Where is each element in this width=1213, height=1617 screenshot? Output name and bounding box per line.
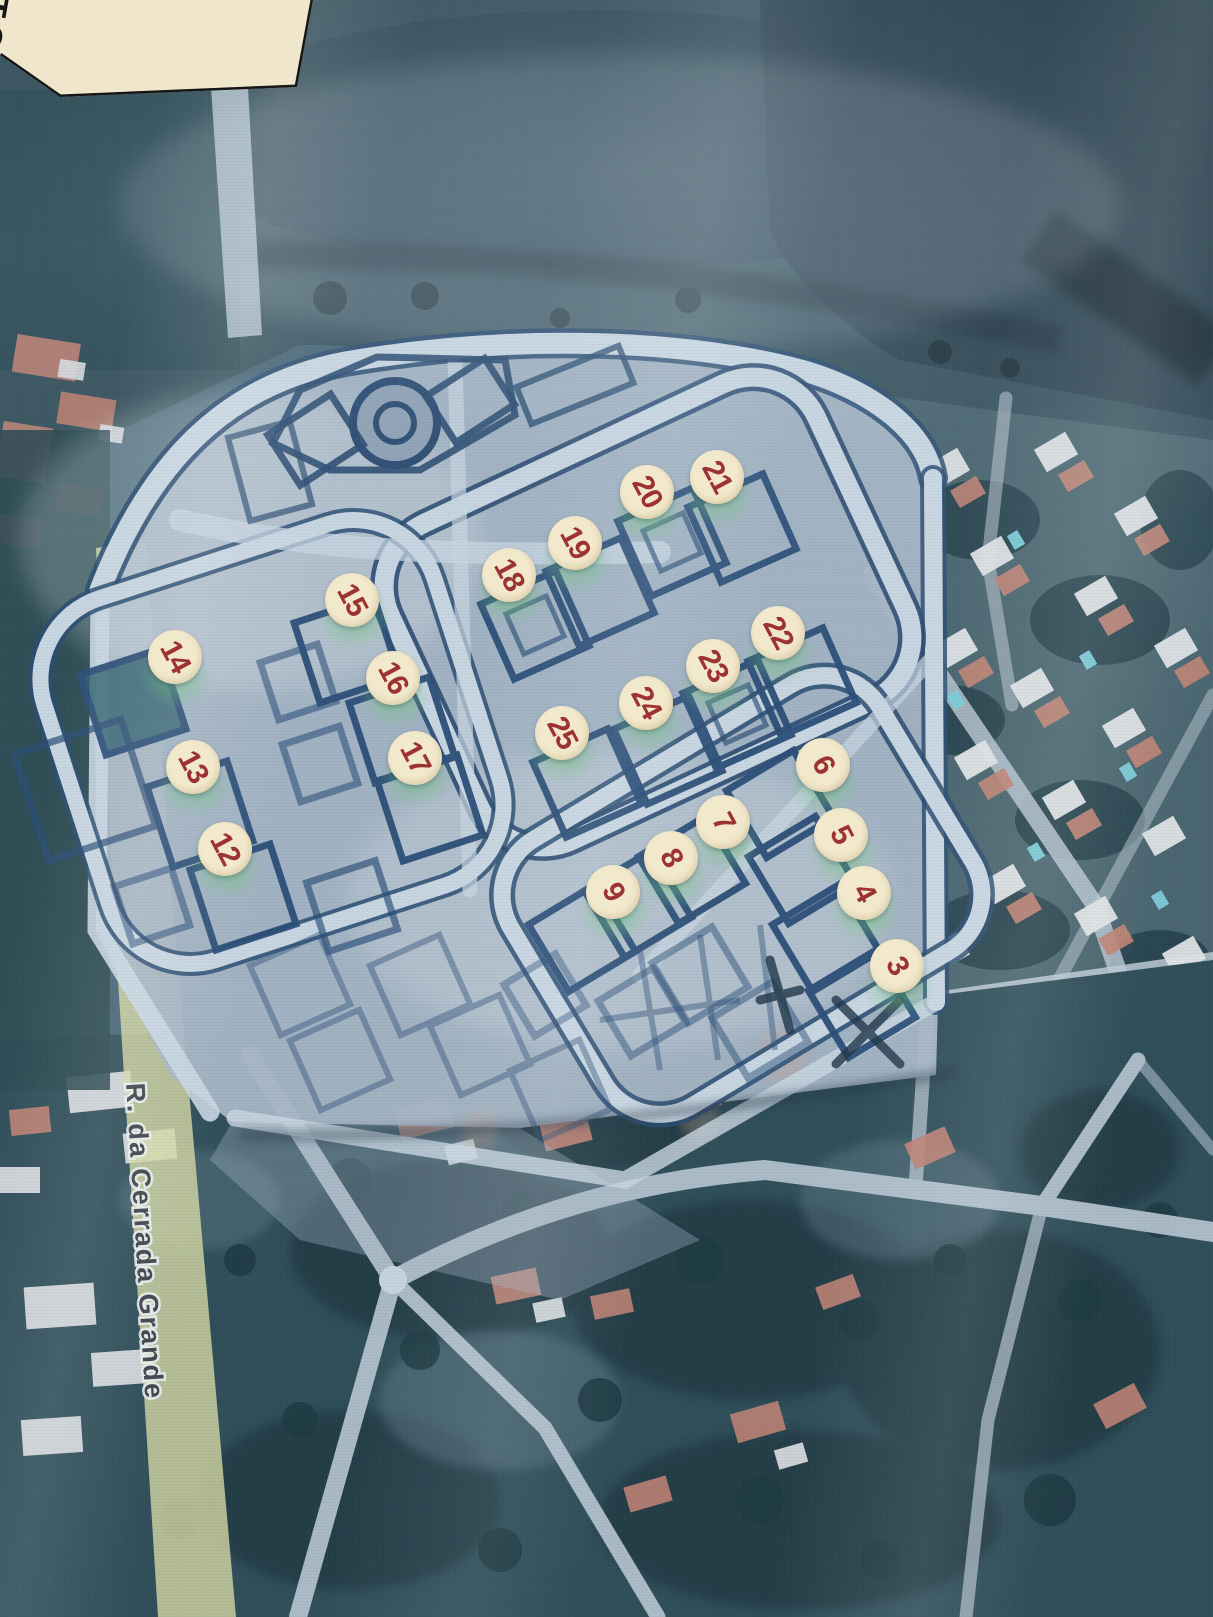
- lot-marker-number: 23: [692, 645, 733, 687]
- lot-marker-16: 16: [366, 651, 420, 705]
- lot-marker-20: 20: [620, 465, 674, 519]
- lot-marker-number: 13: [172, 746, 213, 788]
- lot-marker-number: 22: [757, 612, 798, 654]
- lot-marker-9: 9: [586, 865, 640, 919]
- lot-marker-number: 15: [331, 579, 372, 621]
- lot-marker-number: 20: [626, 471, 667, 513]
- lot-marker-number: 3: [880, 952, 914, 980]
- lot-marker-number: 6: [806, 751, 840, 779]
- lot-marker-number: 24: [625, 682, 666, 724]
- lot-marker-7: 7: [696, 795, 750, 849]
- lot-marker-21: 21: [690, 450, 744, 504]
- lot-marker-number: 5: [824, 821, 858, 849]
- lot-marker-number: 12: [204, 828, 245, 870]
- lot-marker-19: 19: [548, 516, 602, 570]
- lot-marker-5: 5: [814, 808, 868, 862]
- lot-marker-number: 21: [696, 456, 737, 498]
- lot-marker-18: 18: [482, 548, 536, 602]
- lot-marker-number: 9: [596, 878, 630, 906]
- lot-marker-number: 7: [706, 808, 740, 836]
- lot-marker-3: 3: [870, 939, 924, 993]
- lot-marker-number: 25: [541, 712, 582, 754]
- lot-marker-15: 15: [325, 573, 379, 627]
- lot-marker-13: 13: [166, 740, 220, 794]
- lot-marker-number: 4: [847, 879, 881, 907]
- lot-marker-23: 23: [686, 639, 740, 693]
- lot-marker-8: 8: [644, 831, 698, 885]
- lot-marker-17: 17: [388, 731, 442, 785]
- lot-marker-12: 12: [198, 822, 252, 876]
- lot-marker-number: 16: [372, 657, 413, 699]
- lot-marker-number: 17: [394, 737, 435, 779]
- lot-marker-24: 24: [619, 676, 673, 730]
- lot-marker-number: 18: [488, 554, 529, 596]
- lot-marker-14: 14: [148, 630, 202, 684]
- lot-marker-number: 14: [154, 636, 195, 678]
- lot-marker-22: 22: [751, 606, 805, 660]
- lot-marker-25: 25: [535, 706, 589, 760]
- lot-marker-6: 6: [796, 738, 850, 792]
- lot-marker-4: 4: [837, 866, 891, 920]
- lot-marker-number: 19: [554, 522, 595, 564]
- photographed-site-plan: R. da Cerrada Grande 3456789121314151617…: [0, 0, 1213, 1617]
- lot-marker-layer: 34567891213141516171819202122232425: [0, 0, 1213, 1617]
- lot-marker-number: 8: [654, 844, 688, 872]
